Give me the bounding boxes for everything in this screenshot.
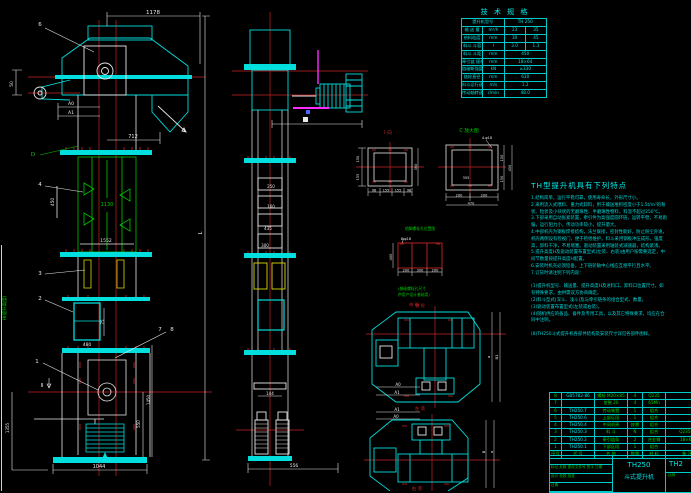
part-no: 1 — [550, 444, 562, 451]
note-line: 有特殊要求，由供需双方协商确定。 — [531, 291, 691, 298]
side-dim-144: 144 — [266, 391, 274, 396]
note-line: 7.订货时请注明下列内容： — [531, 271, 691, 278]
plan2-a0: A0 — [393, 414, 399, 419]
plan1-caption: 左 装 — [415, 405, 426, 412]
dim-712: 712 — [128, 134, 138, 140]
plan1-a1: A1 — [394, 390, 400, 395]
spec-cell: 链轮直径 — [462, 74, 483, 82]
part-material: 65Mn — [643, 400, 666, 407]
part-material: Q235 — [643, 393, 666, 400]
table-row: 2 TH250.2 牵引链条 2 合金钢 18×64 — [550, 436, 691, 443]
dim-1552: 1552 — [100, 238, 112, 244]
part-remark — [666, 414, 691, 421]
table-row: 8 GB5782-86 螺栓 M20×85 4 Q235 — [550, 393, 691, 400]
dim-450: 450 — [50, 198, 56, 207]
part-code — [562, 400, 595, 407]
anchor-note-1: (基础螺栓孔尺寸 — [398, 286, 426, 291]
spec-cell: 3.0 — [504, 42, 525, 50]
part-qty: N — [628, 429, 643, 436]
note-line: (2)料斗型式(深斗、浅斗)及与牵引链条的组合型式、数量。 — [531, 298, 691, 305]
part-name: 料 斗 — [595, 429, 628, 436]
spec-cell: ≥330 — [504, 66, 547, 74]
part-material: 组合 — [643, 429, 666, 436]
spec-cell: 35 — [525, 26, 546, 34]
side-dim-556: 556 — [290, 463, 299, 469]
drawing-title-cell: TH250 斗式提升机 — [613, 456, 666, 492]
dim-480: 480 — [83, 342, 92, 348]
part-qty: 2 — [628, 436, 643, 443]
part-code: GB5782-86 — [562, 393, 595, 400]
dim-a1: A1 — [68, 110, 74, 116]
height-label: H(提升高度) — [1, 295, 8, 320]
detail-c-callout: 4-φ18 — [482, 136, 492, 140]
dim-1130: 1130 — [101, 202, 114, 208]
plan1-a: a — [486, 356, 491, 358]
model-number: TH250 — [613, 461, 665, 469]
detail-i-w1: 98 — [372, 189, 376, 193]
spec-cell: 提升机型号 — [462, 19, 505, 27]
plan1-b1: B1 — [494, 354, 499, 360]
part-remark — [666, 393, 691, 400]
plan2-a1: A1 — [394, 407, 400, 412]
side-dim-435: 435 — [264, 226, 272, 231]
detail-c-200b: 200 — [481, 194, 488, 198]
detail-c-355: 355 — [463, 176, 470, 180]
scale-label: 比例 — [666, 472, 691, 478]
plan2-caption: 右 装 — [412, 485, 423, 491]
anchor-note-2: 供用户设计基础用) — [398, 292, 430, 297]
spec-cell: m³/h — [483, 26, 504, 34]
spec-cell: 料斗 斗距 — [462, 50, 483, 58]
spec-cell: 料斗 斗容 — [462, 42, 483, 50]
detail-i-155: 155 — [356, 174, 360, 181]
note-line: 偏，运行阻力小，传动功率较小，提升量大。 — [531, 223, 691, 230]
part-no: 8 — [550, 393, 562, 400]
spec-cell: mm — [483, 50, 504, 58]
main-elevation-casing — [57, 95, 152, 340]
detail-i-caption: Ⅰ 向 — [384, 129, 392, 136]
side-dim-300: 300 — [261, 243, 269, 248]
detail-c-150a: 150 — [500, 155, 504, 162]
dim-50: 50 — [9, 81, 15, 87]
part-remark — [666, 444, 691, 451]
revision-grid: 标记 处数 更改文件号 签字 日期 设计 校核 批准 日期 — [550, 456, 613, 492]
spec-cell: 料斗运行速度 — [462, 82, 483, 90]
detail-c-470: 470 — [468, 202, 475, 206]
note-line: (4)随机供应的备品、备件及专用工具，以及其它特殊要求，均应在合 — [531, 312, 691, 319]
part-qty: 1 — [628, 407, 643, 414]
part-code: TH250.7 — [562, 407, 595, 414]
anchor-200a: 200 — [403, 269, 410, 273]
part-name: 传动装置 — [595, 407, 628, 414]
note-line: 6.安装时机壳必须铅垂，上下链轮轴中心线应互相平行且水平。 — [531, 264, 691, 271]
part-name: 上部区段 — [595, 414, 628, 421]
part-code: TH250.6 — [562, 414, 595, 421]
balloon-3: 3 — [38, 271, 42, 277]
anchor-callout: 8-φ18 — [401, 237, 411, 241]
part-material: 合金钢 — [643, 436, 666, 443]
note-line: 1.结构简单，运行平稳可靠，使用寿命长，外形尺寸小。 — [531, 196, 691, 203]
anchor-200b: 200 — [432, 269, 439, 273]
spec-cell: 23 — [504, 26, 525, 34]
note-line: 2.采用流入式喂料、重力式卸料，用于输送堆积密度小于1.5t/m³的粉 — [531, 203, 691, 210]
part-qty: 1 — [628, 444, 643, 451]
spec-cell: l — [483, 42, 504, 50]
dim-1044: 1044 — [93, 464, 106, 470]
part-name: 垫圈 20 — [595, 400, 628, 407]
dim-1355: 1355 — [5, 422, 10, 433]
balloon-7: 7 — [158, 327, 162, 333]
feature-notes-title: TH型提升机具有下列特点 — [531, 180, 691, 191]
plan2-b: B — [481, 450, 486, 453]
main-elevation-boot — [34, 348, 150, 463]
part-qty: 1 — [628, 414, 643, 421]
spec-cell: 18×64 — [504, 58, 547, 66]
side-elevation — [244, 30, 362, 473]
part-no: 3 — [550, 429, 562, 436]
spec-cell: 1.3 — [525, 42, 546, 50]
dim-a0: A0 — [68, 101, 74, 107]
title-block-right-cell: TH2 比例 — [666, 456, 691, 492]
cad-drawing-canvas: 1178 712 A0 A1 50 1130 450 1552 480 75 1… — [0, 0, 691, 491]
parts-list: 8 GB5782-86 螺栓 M20×85 4 Q235 7 垫圈 20 4 6… — [549, 392, 691, 459]
note-line: 机壳两侧设有检视门，便于检修维护。料斗采用钢板冲压成形，强度 — [531, 237, 691, 244]
feature-notes: TH型提升机具有下列特点 1.结构简单，运行平稳可靠，使用寿命长，外形尺寸小。 … — [531, 180, 691, 339]
part-qty: 按需 — [628, 422, 643, 429]
balloon-1: 1 — [35, 359, 39, 365]
spec-cell: 输 送 量 — [462, 26, 483, 34]
table-row: 3 TH250.3 料 斗 N 组合 Q235-A — [550, 429, 691, 436]
part-code: TH250.2 — [562, 436, 595, 443]
balloon-8: 8 — [170, 327, 174, 333]
part-code: TH250.1 — [562, 444, 595, 451]
drawing-number: TH2 — [666, 456, 691, 468]
spec-table: 技 术 规 格 提升机型号 TH 250 输 送 量 m³/h 23 35 给料… — [461, 7, 549, 98]
note-line: 间节数量按提升高度H配置。 — [531, 257, 691, 264]
part-remark: 18×64 — [666, 436, 691, 443]
part-qty: 4 — [628, 400, 643, 407]
detail-c-200a: 200 — [456, 194, 463, 198]
spec-cell: 30 — [504, 34, 525, 42]
part-no: 7 — [550, 400, 562, 407]
part-name: 中间机壳 — [595, 422, 628, 429]
section-marker-2: Ⅱ — [41, 383, 43, 389]
anchor-400: 400 — [389, 254, 393, 261]
spec-cell: 1.2 — [504, 82, 547, 90]
table-row: 4 TH250.4 中间机壳 按需 组合 — [550, 422, 691, 429]
revision-row — [550, 456, 612, 465]
detail-i-360: 360 — [414, 164, 418, 171]
part-remark — [666, 400, 691, 407]
dim-L: L — [198, 231, 204, 235]
balloon-4: 4 — [38, 182, 42, 188]
anchor-title: 地脚螺栓孔位置图 — [405, 226, 436, 231]
spec-cell: 链破断强度 — [462, 66, 483, 74]
part-name: 螺栓 M20×85 — [595, 393, 628, 400]
spec-cell: r/min — [483, 90, 504, 98]
spec-cell: kN — [483, 66, 504, 74]
part-material: 组合 — [643, 422, 666, 429]
spec-cell: 传动轴转速 — [462, 90, 483, 98]
plan-view-left — [372, 312, 500, 402]
spec-cell: 450 — [504, 50, 547, 58]
part-material: 组合 — [643, 407, 666, 414]
table-row: 6 TH250.7 传动装置 1 组合 — [550, 407, 691, 414]
plan1-caption-top: 俯 视 — [415, 302, 424, 308]
letter-d: D — [31, 152, 35, 158]
spec-cell: 牵引链 规格 — [462, 58, 483, 66]
spec-cell: 给料粒度 — [462, 34, 483, 42]
spec-cell: mm — [483, 58, 504, 66]
part-remark — [666, 422, 691, 429]
part-material: 组合 — [643, 414, 666, 421]
part-no: 4 — [550, 422, 562, 429]
part-remark: Q235-A — [666, 429, 691, 436]
side-dim-160: 160 — [267, 204, 275, 209]
plan1-a0: A0 — [395, 382, 401, 387]
spec-cell: 48.0 — [504, 90, 547, 98]
detail-i-w3: 155 — [395, 189, 401, 193]
part-no: 5 — [550, 414, 562, 421]
detail-i-w4: 98 — [407, 189, 411, 193]
note-line: (3)驱动装置布置型式(左装或右装)。 — [531, 305, 691, 312]
note-line: 同中注明。 — [531, 318, 691, 325]
table-row: 1 TH250.1 下部区段 1 组合 — [550, 444, 691, 451]
spec-cell: m/s — [483, 82, 504, 90]
revision-labels: 标记 处数 更改文件号 签字 日期 — [550, 465, 612, 474]
dim-1178: 1178 — [146, 10, 160, 16]
side-dim-250: 250 — [267, 184, 275, 189]
plan2-a: a — [489, 451, 494, 453]
detail-c-450: 450 — [508, 165, 512, 172]
dim-1450: 1450 — [146, 394, 151, 405]
note-line: 4.中部机壳为钢板焊接结构，法兰联接，密封性能好，防止粉尘外逸， — [531, 230, 691, 237]
part-remark — [666, 407, 691, 414]
drawing-name: 斗式提升机 — [613, 472, 665, 481]
part-no: 2 — [550, 436, 562, 443]
part-code: TH250.3 — [562, 429, 595, 436]
table-row: 7 垫圈 20 4 65Mn — [550, 400, 691, 407]
table-row: 5 TH250.6 上部区段 1 组合 — [550, 414, 691, 421]
signature-labels: 设计 校核 批准 — [550, 474, 612, 483]
detail-i-w2: 155 — [383, 189, 389, 193]
spec-cell: TH 250 — [504, 19, 547, 27]
dim-75: 75 — [100, 319, 105, 325]
spec-cell: mm — [483, 34, 504, 42]
spec-cell: mm — [483, 74, 504, 82]
note-line — [531, 325, 691, 332]
detail-c-150b: 150 — [500, 176, 504, 183]
anchor-300: 300 — [417, 269, 424, 273]
part-qty: 4 — [628, 393, 643, 400]
part-code: TH250.4 — [562, 422, 595, 429]
spec-cell: 630 — [504, 74, 547, 82]
note-line: (8)TH250斗式提升机各部件结构及安装尺寸详见各部件图样。 — [531, 332, 691, 339]
part-name: 牵引链条 — [595, 436, 628, 443]
title-block: 标记 处数 更改文件号 签字 日期 设计 校核 批准 日期 TH250 斗式提升… — [549, 455, 691, 493]
part-no: 6 — [550, 407, 562, 414]
spec-table-title: 技 术 规 格 — [461, 7, 549, 17]
detail-c-caption: C 放大图 — [459, 127, 478, 134]
balloon-6: 6 — [38, 22, 42, 28]
detail-i-150: 150 — [356, 156, 360, 163]
spec-cell: 45 — [525, 34, 546, 42]
balloon-2: 2 — [38, 296, 42, 302]
dim-550: 550 — [136, 420, 141, 428]
part-material: 组合 — [643, 444, 666, 451]
part-name: 下部区段 — [595, 444, 628, 451]
